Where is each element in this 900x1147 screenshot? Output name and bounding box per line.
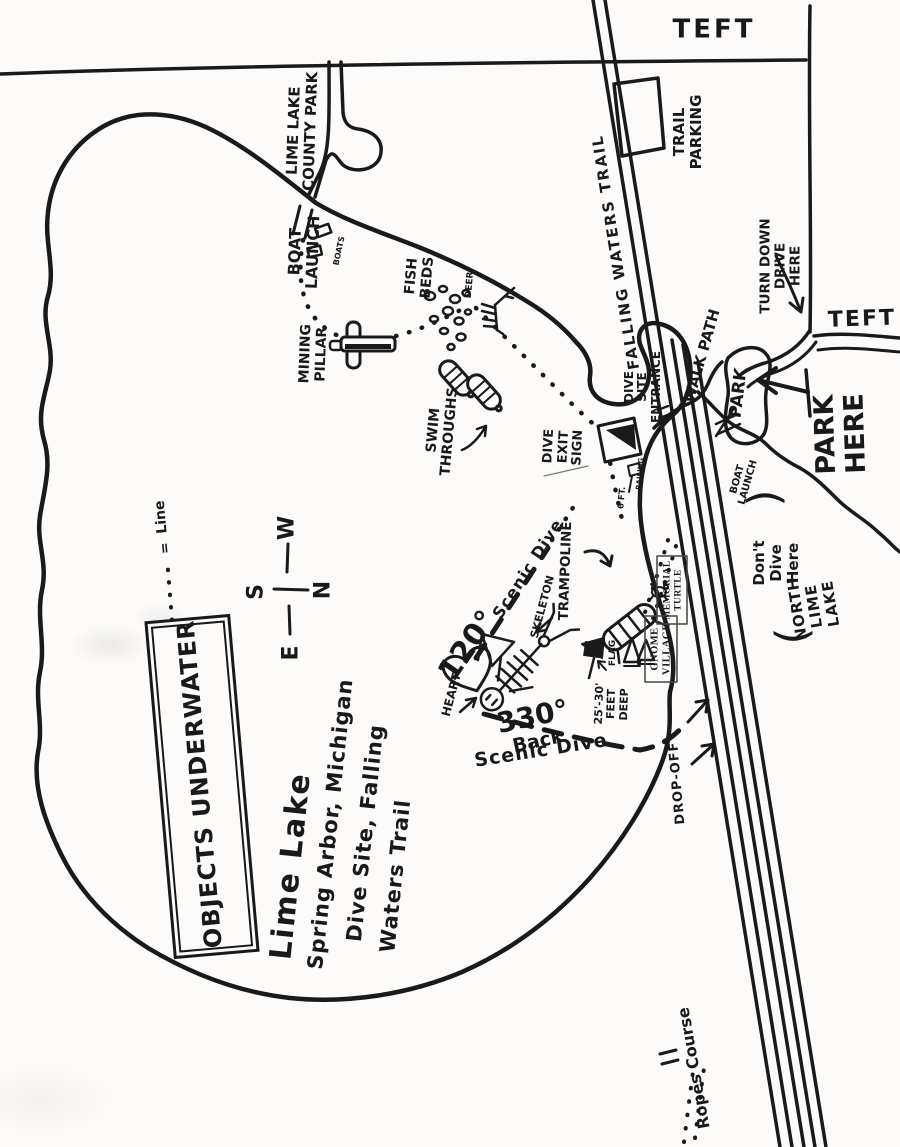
- park-here-label: PARK HERE: [809, 393, 872, 475]
- dive-exit-sign-label: DIVE EXIT SIGN: [541, 428, 586, 466]
- six-ft-label: 6 FT.: [617, 486, 628, 509]
- lime-lake-county-park-label: LIME LAKE COUNTY PARK: [283, 71, 321, 191]
- compass-e: E: [280, 645, 305, 660]
- heart-arrow: [460, 698, 476, 712]
- flag-drawing: [582, 638, 606, 678]
- flag-label: FLAG: [608, 640, 618, 666]
- flag-arrow: [598, 661, 606, 670]
- paren-open: (: [767, 627, 816, 644]
- teft-road-label-right: TEFT: [828, 307, 897, 334]
- dive-site-entrance-label: DIVE SITE ENTRANCE: [623, 351, 663, 423]
- feet-deep-label: 25'-30' FEET DEEP: [593, 682, 631, 725]
- legend-line-word: Line: [153, 500, 172, 534]
- fish-beds-label: FISH BEDS: [403, 255, 438, 300]
- compass-s: S: [245, 584, 270, 600]
- compass-w: W: [276, 516, 301, 540]
- memorial-turtle-label: MEMORIAL TURTLE: [662, 560, 683, 619]
- legend-line-equals: =: [158, 541, 175, 554]
- deer-drawing: [482, 288, 515, 334]
- trail-parking-lot: [614, 78, 664, 156]
- turn-down-drive-here-label: TURN DOWN DRIVE HERE: [758, 218, 803, 313]
- trail-parking-label: TRAIL PARKING: [671, 95, 705, 170]
- mining-pillar-drawing: [330, 322, 395, 368]
- hand-drawn-dive-map: TEFT TRAIL PARKING FALLING WATERS TRAIL …: [0, 0, 900, 1147]
- boat-launch-north-label: BOAT LAUNCH: [285, 215, 323, 290]
- teft-road-label-top: TEFT: [673, 15, 756, 44]
- compass-cross: [274, 544, 308, 634]
- legend-ropes-equals: [660, 1050, 678, 1064]
- legend-line-dots: [167, 558, 172, 620]
- paren-close: ): [739, 489, 788, 506]
- gnome-village-label: GNOME VILLAGE: [649, 623, 673, 675]
- trampoline-arrow: [585, 551, 612, 566]
- drop-off-arrow: [692, 744, 714, 764]
- dont-dive-here-label: Don't Dive Here: [751, 540, 801, 585]
- compass-n: N: [312, 581, 337, 599]
- swim-throughs-arrow: [462, 426, 486, 450]
- mining-pillar-label: MINING PILLAR: [297, 324, 330, 384]
- teft-road-top: [0, 60, 806, 74]
